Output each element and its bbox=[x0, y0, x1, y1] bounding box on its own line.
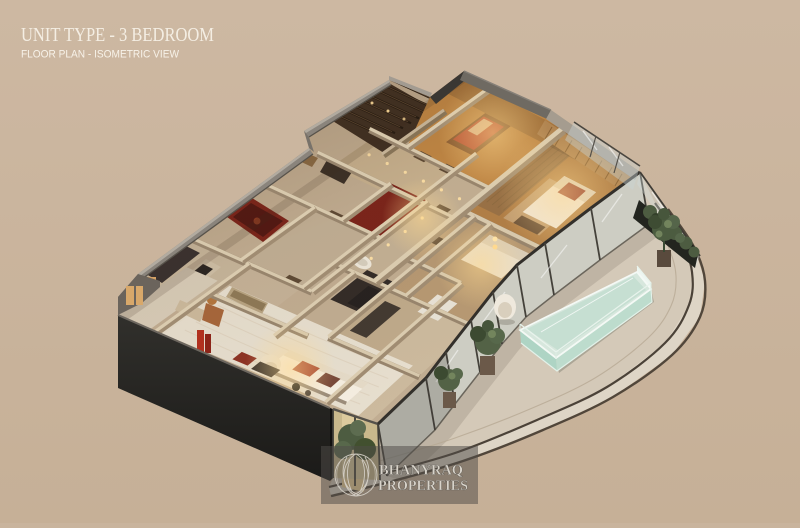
svg-text:PROPERTIES: PROPERTIES bbox=[378, 478, 468, 494]
svg-text:BHANYRAQ: BHANYRAQ bbox=[379, 463, 463, 479]
svg-text:UNIT TYPE - 3 BEDROOM: UNIT TYPE - 3 BEDROOM bbox=[21, 25, 214, 46]
svg-text:FLOOR PLAN - ISOMETRIC VIEW: FLOOR PLAN - ISOMETRIC VIEW bbox=[21, 49, 180, 61]
